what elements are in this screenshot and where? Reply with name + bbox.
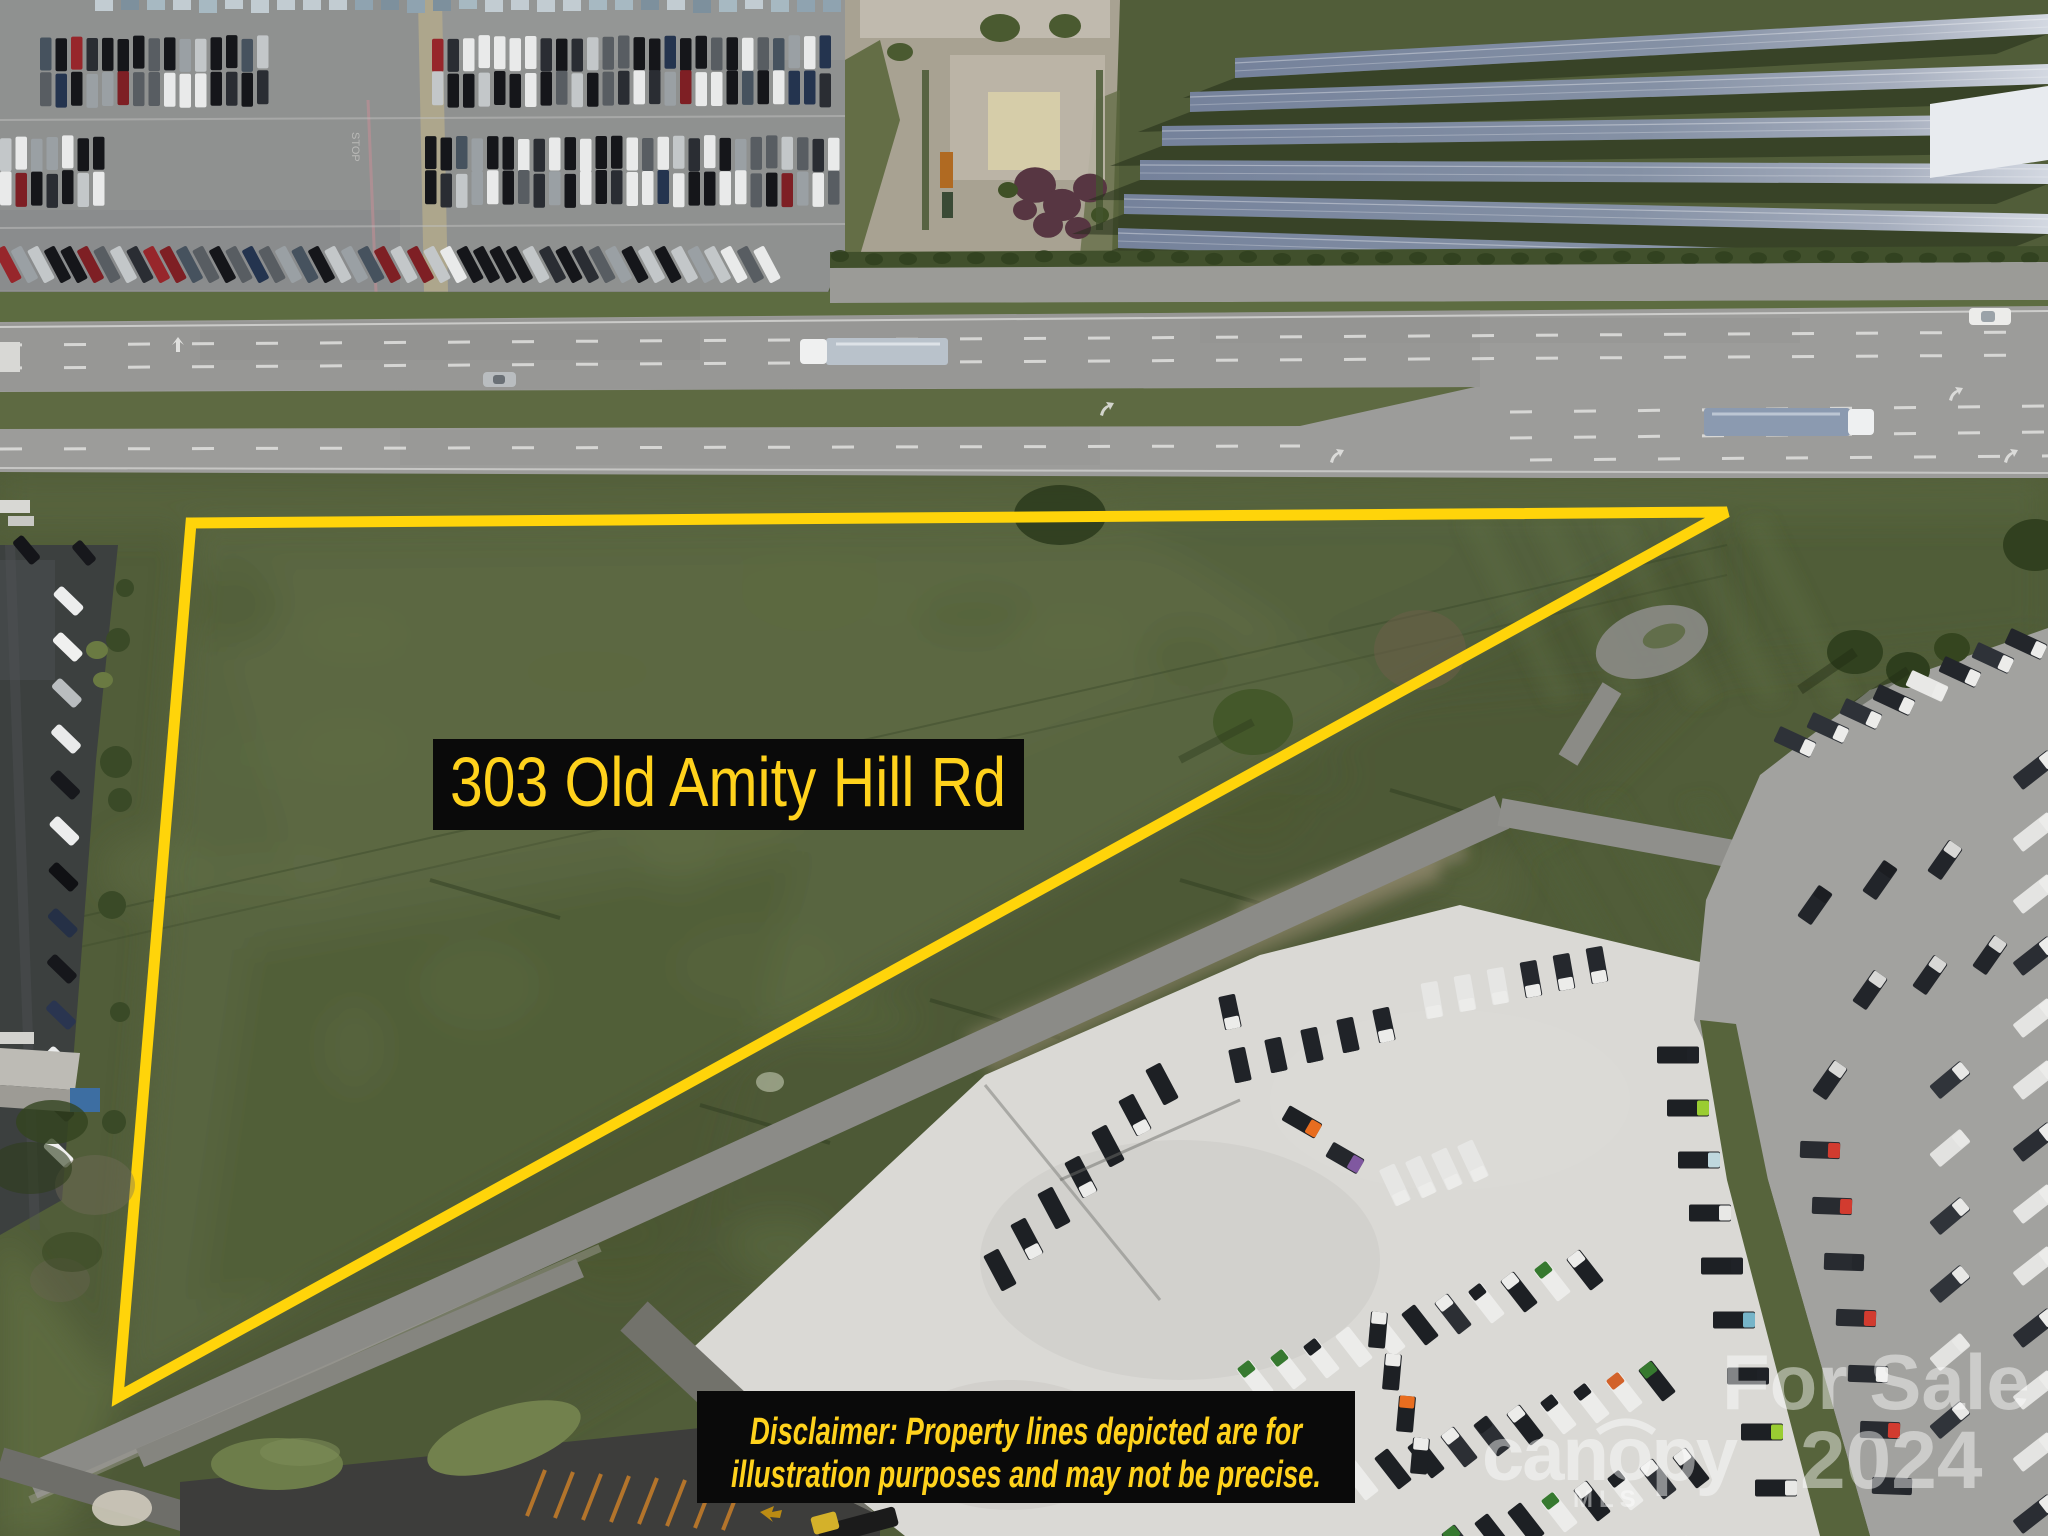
svg-text:Disclaimer: Property lines dep: Disclaimer: Property lines depicted are … (750, 1411, 1304, 1453)
svg-text:illustration purposes and may: illustration purposes and may not be pre… (731, 1454, 1321, 1496)
svg-text:STOP: STOP (349, 132, 361, 162)
svg-text:MLS: MLS (1573, 1486, 1642, 1513)
svg-text:2024: 2024 (1800, 1415, 1983, 1506)
svg-text:For Sale: For Sale (1722, 1338, 2030, 1426)
svg-text:303 Old Amity Hill Rd: 303 Old Amity Hill Rd (450, 743, 1006, 821)
